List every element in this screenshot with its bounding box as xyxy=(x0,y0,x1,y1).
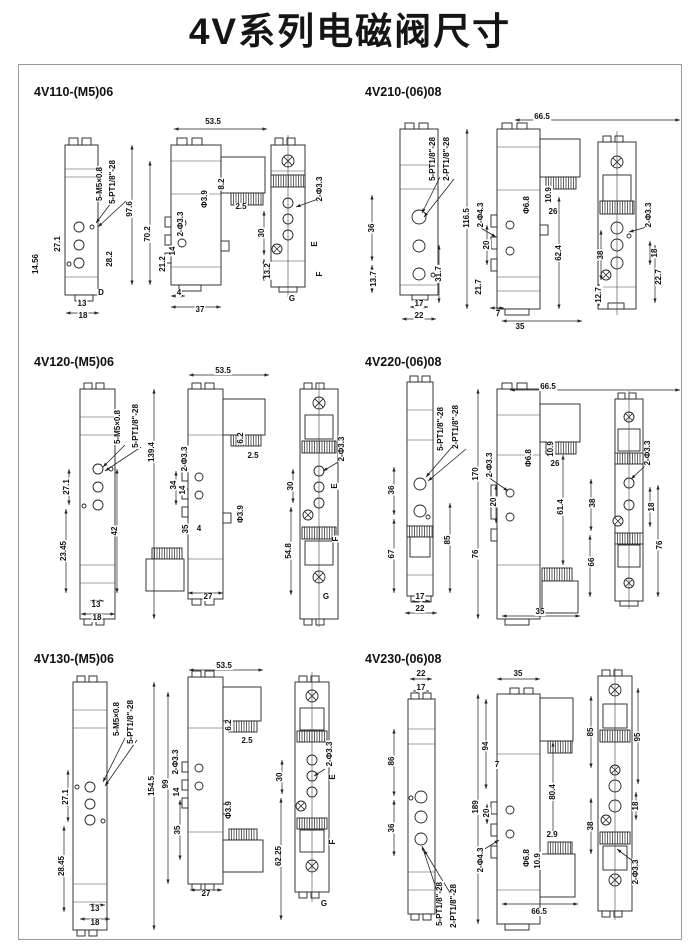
dimension-label: 85 xyxy=(444,535,452,546)
dimension-label: 54.8 xyxy=(285,542,293,560)
dimension-label: 20 xyxy=(490,497,498,508)
dimension-label: 30 xyxy=(258,228,266,239)
dimension-label: G xyxy=(288,295,296,303)
dimension-label: 22.7 xyxy=(655,268,663,286)
dimension-label: 18 xyxy=(78,312,89,320)
dimension-label: E xyxy=(331,482,339,489)
dimension-label: 85 xyxy=(587,727,595,738)
dimension-label: 17 xyxy=(416,684,427,692)
dimension-label: 5-PT1/8"-28 xyxy=(109,159,117,205)
dimension-label: 35 xyxy=(513,670,524,678)
dimension-label: E xyxy=(329,773,337,780)
dimension-label: 189 xyxy=(472,799,480,814)
dimension-label: 18 xyxy=(648,502,656,513)
dimension-label: 2-Φ4.3 xyxy=(477,202,485,229)
dimension-label: 17 xyxy=(415,593,426,601)
panel-label: 4V220-(06)08 xyxy=(365,355,441,369)
dimension-label: 27.1 xyxy=(62,788,70,806)
dimension-label: 5-PT1/8"-28 xyxy=(429,136,437,182)
dimension-label: 35 xyxy=(515,323,526,331)
dimension-label: 18 xyxy=(651,248,659,259)
dimension-label: 2.5 xyxy=(234,203,247,211)
dimension-label: 27 xyxy=(201,890,212,898)
dimension-label: 5-PT1/8"-28 xyxy=(437,406,445,452)
dimension-label: 67 xyxy=(388,549,396,560)
valve-drawing xyxy=(350,65,681,335)
dimension-label: 30 xyxy=(287,481,295,492)
dimension-label: 17 xyxy=(414,300,425,308)
dimension-label: 14 xyxy=(169,246,177,257)
dimension-label: D xyxy=(97,289,105,297)
dimension-label: 116.5 xyxy=(463,207,471,229)
dimension-label: 2-Φ4.3 xyxy=(477,847,485,874)
dimension-label: 14 xyxy=(173,787,181,798)
dimension-label: 2-Φ3.3 xyxy=(645,202,653,229)
dimension-label: 6.2 xyxy=(225,718,233,731)
valve-drawing xyxy=(19,632,350,939)
dimension-label: 70.2 xyxy=(144,225,152,243)
dimension-label: 18 xyxy=(92,614,103,622)
dimension-label: 5-M5×0.8 xyxy=(113,701,121,737)
dimension-label: 37 xyxy=(195,306,206,314)
dimension-label: 27.1 xyxy=(54,235,62,253)
dimension-label: 53.5 xyxy=(214,367,232,375)
dimension-label: 22 xyxy=(416,670,427,678)
page: { "page": { "title": "4V系列电磁阀尺寸" }, "col… xyxy=(0,0,700,945)
dimension-label: 28.2 xyxy=(106,250,114,268)
valve-drawing xyxy=(19,65,350,335)
dimension-label: 14 xyxy=(179,485,187,496)
dimension-label: E xyxy=(311,240,319,247)
dimension-label: F xyxy=(316,271,324,278)
dimension-label: 2-Φ3.3 xyxy=(177,211,185,238)
page-title: 4V系列电磁阀尺寸 xyxy=(0,1,700,55)
dimension-label: G xyxy=(320,900,328,908)
dimension-label: F xyxy=(332,536,340,543)
dimension-label: 22 xyxy=(415,605,426,613)
dimension-label: 2-PT1/8"-28 xyxy=(443,136,451,182)
panel-4v130-m5-06: 4V130-(M5)06 5-M5×0.85-PT1/8"-2827.128.4… xyxy=(19,632,350,939)
dimension-label: 53.5 xyxy=(215,662,233,670)
drawing-frame: 4V110-(M5)06 5-M5×0.85-PT1/8"-2827.114.5… xyxy=(18,64,682,940)
dimension-label: 13.7 xyxy=(370,270,378,288)
dimension-label: 21.7 xyxy=(475,278,483,296)
dimension-label: 76 xyxy=(472,549,480,560)
dimension-label: 61.4 xyxy=(557,498,565,516)
panel-label: 4V120-(M5)06 xyxy=(34,355,114,369)
panel-4v110-m5-06: 4V110-(M5)06 5-M5×0.85-PT1/8"-2827.114.5… xyxy=(19,65,350,335)
dimension-label: 38 xyxy=(589,498,597,509)
panel-4v230-06-08: 4V230-(06)08 221786365-PT1/8"-282-PT1/8"… xyxy=(350,632,681,939)
dimension-label: 28.45 xyxy=(58,855,66,877)
dimension-label: 2.9 xyxy=(545,831,558,839)
dimension-label: 99 xyxy=(162,779,170,790)
dimension-label: 42 xyxy=(111,526,119,537)
dimension-label: 66.5 xyxy=(533,113,551,121)
dimension-label: 35 xyxy=(174,825,182,836)
valve-drawing xyxy=(350,335,681,632)
panel-label: 4V130-(M5)06 xyxy=(34,652,114,666)
dimension-label: 97.6 xyxy=(126,200,134,218)
dimension-label: Φ6.8 xyxy=(523,195,531,215)
dimension-label: 154.5 xyxy=(148,775,156,797)
dimension-label: 2-PT1/8"-28 xyxy=(450,883,458,929)
dimension-label: 2-Φ3.3 xyxy=(181,446,189,473)
dimension-label: Φ6.8 xyxy=(523,848,531,868)
dimension-label: 36 xyxy=(388,823,396,834)
dimension-label: 2-Φ3.3 xyxy=(326,741,334,768)
dimension-label: 27 xyxy=(203,593,214,601)
dimension-label: 10.9 xyxy=(545,186,553,204)
dimension-label: 12.7 xyxy=(595,286,603,304)
dimension-label: 62.4 xyxy=(555,244,563,262)
panel-label: 4V210-(06)08 xyxy=(365,85,441,99)
dimension-label: 26 xyxy=(548,208,559,216)
dimension-label: 20 xyxy=(483,240,491,251)
dimension-label: 62.25 xyxy=(275,845,283,867)
dimension-label: Φ3.9 xyxy=(201,189,209,209)
dimension-label: 5-M5×0.8 xyxy=(114,409,122,445)
dimension-label: 5-M5×0.8 xyxy=(96,166,104,202)
dimension-label: 80.4 xyxy=(549,783,557,801)
dimension-label: 10.9 xyxy=(534,852,542,870)
dimension-label: 30 xyxy=(276,772,284,783)
dimension-label: 6.2 xyxy=(237,431,245,444)
dimension-label: 23.45 xyxy=(60,540,68,562)
dimension-label: 36 xyxy=(368,223,376,234)
dimension-label: 22 xyxy=(414,312,425,320)
dimension-label: 14.56 xyxy=(32,253,40,275)
dimension-label: 2-Φ3.3 xyxy=(338,436,346,463)
panel-4v210-06-08: 4V210-(06)08 5-PT1/8"-282-PT1/8"-283613.… xyxy=(350,65,681,335)
panel-label: 4V230-(06)08 xyxy=(365,652,441,666)
dimension-label: 5-PT1/8"-28 xyxy=(127,699,135,745)
dimension-label: 27.1 xyxy=(63,478,71,496)
dimension-label: 38 xyxy=(587,821,595,832)
dimension-label: F xyxy=(329,839,337,846)
dimension-label: 26 xyxy=(550,460,561,468)
dimension-label: 5-PT1/8"-28 xyxy=(132,403,140,449)
dimension-label: Φ3.9 xyxy=(237,504,245,524)
dimension-label: 35 xyxy=(535,608,546,616)
dimension-label: 86 xyxy=(388,756,396,767)
dimension-label: 2-Φ3.3 xyxy=(172,749,180,776)
dimension-label: 66.5 xyxy=(530,908,548,916)
dimension-label: 35 xyxy=(182,524,190,535)
dimension-label: 2-PT1/8"-28 xyxy=(452,404,460,450)
dimension-label: 18 xyxy=(90,919,101,927)
dimension-label: 66.5 xyxy=(539,383,557,391)
dimension-label: 13 xyxy=(90,905,101,913)
dimension-label: 2.5 xyxy=(240,737,253,745)
dimension-label: 36 xyxy=(388,485,396,496)
dimension-label: 13 xyxy=(91,601,102,609)
dimension-label: Φ3.9 xyxy=(225,800,233,820)
valve-drawing xyxy=(350,632,681,939)
dimension-label: 8.2 xyxy=(218,177,226,190)
dimension-label: 4 xyxy=(196,525,202,533)
dimension-label: 2-Φ3.3 xyxy=(632,859,640,886)
dimension-label: 2-Φ3.3 xyxy=(644,440,652,467)
dimension-label: 38 xyxy=(597,250,605,261)
dimension-label: 21.2 xyxy=(159,255,167,273)
dimension-label: 31.7 xyxy=(435,265,443,283)
dimension-label: 4 xyxy=(176,289,182,297)
dimension-label: 10.9 xyxy=(547,440,555,458)
dimension-label: 170 xyxy=(472,466,480,481)
panel-4v220-06-08: 4V220-(06)08 5-PT1/8"-282-PT1/8"-2836678… xyxy=(350,335,681,632)
dimension-label: 94 xyxy=(482,741,490,752)
dimension-label: 20 xyxy=(483,808,491,819)
panel-label: 4V110-(M5)06 xyxy=(34,85,113,99)
dimension-label: 2-Φ3.3 xyxy=(316,176,324,203)
dimension-label: 95 xyxy=(634,732,642,743)
dimension-label: 139.4 xyxy=(148,441,156,463)
dimension-label: Φ6.8 xyxy=(525,448,533,468)
dimension-label: 2-Φ3.3 xyxy=(486,452,494,479)
dimension-label: 53.5 xyxy=(204,118,222,126)
dimension-label: 7 xyxy=(495,310,501,318)
dimension-label: 18 xyxy=(632,801,640,812)
dimension-label: 5-PT1/8"-28 xyxy=(436,881,444,927)
panel-4v120-m5-06: 4V120-(M5)06 5-M5×0.85-PT1/8"-2827.123.4… xyxy=(19,335,350,632)
dimension-label: 76 xyxy=(656,540,664,551)
dimension-label: 34 xyxy=(170,480,178,491)
dimension-label: 13 xyxy=(77,300,88,308)
dimension-label: G xyxy=(322,593,330,601)
dimension-label: 66 xyxy=(588,557,596,568)
dimension-label: 7 xyxy=(494,761,500,769)
dimension-label: 13.2 xyxy=(264,262,272,280)
dimension-label: 2.5 xyxy=(246,452,259,460)
